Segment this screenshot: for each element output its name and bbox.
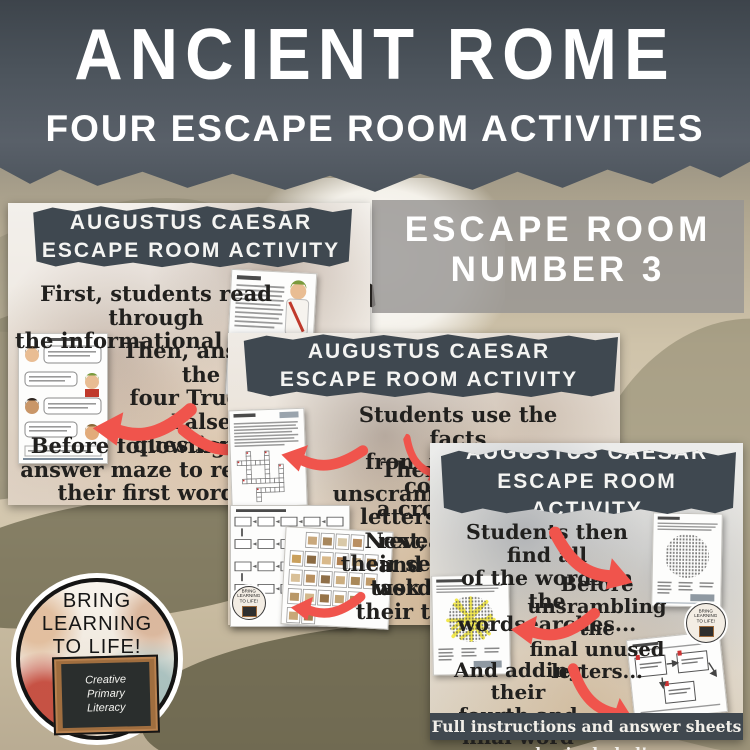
page-subtitle: FOUR ESCAPE ROOM ACTIVITIES <box>0 108 750 150</box>
mini-logo: BRING LEARNING TO LIFE! <box>686 603 726 643</box>
chalkboard-surface: Creative Primary Literacy <box>61 662 151 728</box>
badge-line2: NUMBER 3 <box>372 250 744 290</box>
header-banner: ANCIENT ROME FOUR ESCAPE ROOM ACTIVITIES <box>0 0 750 202</box>
footer-note: Full instructions and answer sheets also… <box>430 713 743 740</box>
mini-logo-text: BRING LEARNING TO LIFE! <box>694 610 717 624</box>
card2-header-line2: ESCAPE ROOM ACTIVITY <box>240 366 618 394</box>
mini-logo-chalkboard <box>242 606 257 617</box>
logo-line1: BRING <box>20 590 174 613</box>
chalkboard-line3: Literacy <box>62 701 150 717</box>
card2-header: AUGUSTUS CAESAR ESCAPE ROOM ACTIVITY <box>240 333 618 399</box>
escape-room-number-badge: ESCAPE ROOM NUMBER 3 <box>372 200 744 313</box>
card-activity-3: AUGUSTUS CAESAR ESCAPE ROOM ACTIVITY Stu… <box>430 443 743 740</box>
chalkboard: Creative Primary Literacy <box>52 655 160 736</box>
page-title: ANCIENT ROME <box>0 13 750 96</box>
mini-logo-chalkboard <box>699 626 714 637</box>
product-cover: ANCIENT ROME FOUR ESCAPE ROOM ACTIVITIES… <box>0 0 750 750</box>
mini-logo: BRING LEARNING TO LIFE! <box>232 586 266 620</box>
card3-header-line1: AUGUSTUS CAESAR <box>438 439 736 467</box>
card1-header-line2: ESCAPE ROOM ACTIVITY <box>30 237 352 265</box>
logo-line2: LEARNING <box>20 613 174 636</box>
card2-header-line1: AUGUSTUS CAESAR <box>240 338 618 366</box>
brand-logo: BRING LEARNING TO LIFE! Creative Primary… <box>16 578 178 740</box>
card1-header: AUGUSTUS CAESAR ESCAPE ROOM ACTIVITY <box>30 205 352 269</box>
badge-line1: ESCAPE ROOM <box>372 210 744 250</box>
mini-logo-text: BRING LEARNING TO LIFE! <box>237 590 260 604</box>
card3-header: AUGUSTUS CAESAR ESCAPE ROOM ACTIVITY <box>438 448 736 516</box>
card1-header-line1: AUGUSTUS CAESAR <box>30 209 352 237</box>
